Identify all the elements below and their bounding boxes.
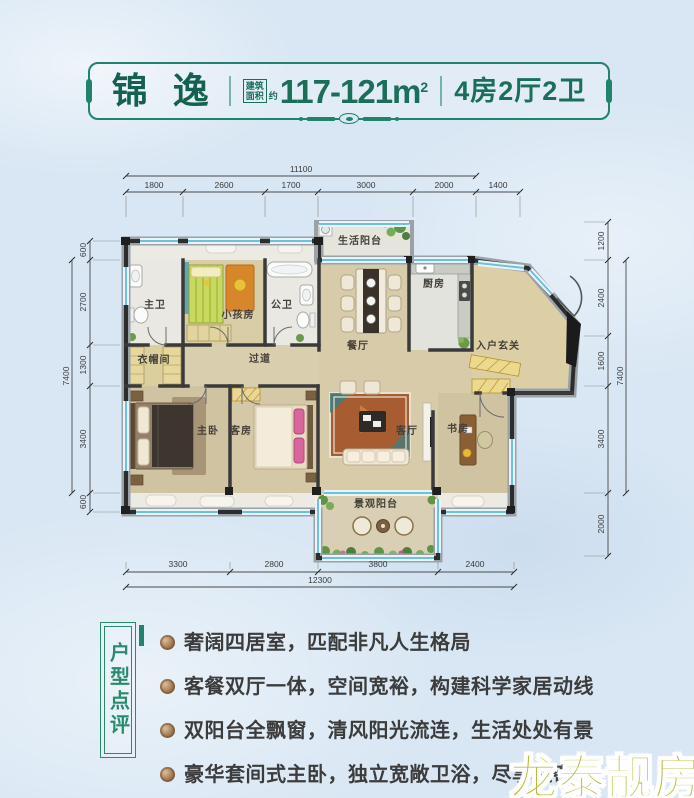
header-divider <box>440 76 442 106</box>
seal-icon <box>160 679 175 694</box>
card-edge-bar-left <box>86 79 92 103</box>
watermark: 龙泰靓房 <box>510 739 694 798</box>
dim-right-1: 1200 <box>596 231 606 250</box>
ornament-dot <box>395 117 399 121</box>
dim-top-total: 11100 <box>290 164 313 174</box>
list-item: 奢阔四居室，匹配非凡人生格局 <box>160 629 660 657</box>
dim-top-1: 1800 <box>145 180 164 190</box>
seal-icon <box>160 767 175 782</box>
header-divider <box>229 76 231 106</box>
review-tag-bar <box>139 625 144 646</box>
dim-top-5: 2000 <box>435 180 454 190</box>
dim-left-total: 7400 <box>61 366 71 385</box>
dim-right-5: 2000 <box>596 514 606 533</box>
header-divider-ornament <box>299 113 399 124</box>
room-label-view-balcony: 景观阳台 <box>354 497 398 510</box>
ornament-dot <box>299 117 303 121</box>
room-label-guest-room: 客房 <box>229 424 252 437</box>
unit-spec: 4房2厅2卫 <box>454 78 586 105</box>
poster-page: 锦 逸 建筑 面积 约 117-121m 2 4房2厅2卫 <box>0 0 694 798</box>
dimensions-bottom: 3300 2800 3800 2400 12300 <box>123 559 517 590</box>
card-edge-bar-right <box>606 79 612 103</box>
dimensions-top: 11100 1800 2600 1700 3000 2000 1400 <box>123 164 523 217</box>
seal-icon <box>160 635 175 650</box>
area-group: 建筑 面积 约 117-121m 2 <box>243 75 428 108</box>
dim-right-3: 1600 <box>596 351 606 370</box>
area-label-box: 建筑 面积 <box>243 79 267 103</box>
floor-plan: 11100 1800 2600 1700 3000 2000 1400 7400… <box>60 155 640 625</box>
dim-top-3: 1700 <box>282 180 301 190</box>
area-superscript: 2 <box>420 80 428 94</box>
list-item: 客餐双厅一体，空间宽裕，构建科学家居动线 <box>160 673 660 701</box>
selling-point-text: 客餐双厅一体，空间宽裕，构建科学家居动线 <box>184 673 594 701</box>
dim-bottom-total: 12300 <box>308 575 332 585</box>
dim-left-4: 3400 <box>78 429 88 448</box>
dimensions-right: 1200 2400 1600 3400 2000 7400 <box>584 219 629 559</box>
area-value: 117-121m <box>280 75 421 108</box>
room-label-kitchen: 厨房 <box>423 277 445 290</box>
room-label-master-bedroom: 主卧 <box>197 424 219 437</box>
room-label-cloakroom: 衣帽间 <box>138 353 171 366</box>
room-label-public-bath: 公卫 <box>271 299 293 311</box>
selling-point-text: 奢阔四居室，匹配非凡人生格局 <box>184 629 471 657</box>
area-label-top: 建筑 <box>246 81 264 91</box>
room-label-study: 书房 <box>447 422 469 435</box>
review-section-tag: 户型点评 <box>100 622 136 758</box>
approx-label: 约 <box>269 89 278 102</box>
ornament-pupil <box>346 117 353 121</box>
room-label-foyer: 入户玄关 <box>476 339 520 352</box>
ornament-bar <box>363 117 391 121</box>
ornament-bar <box>307 117 335 121</box>
dim-right-total: 7400 <box>615 366 625 385</box>
ornament-eye <box>339 113 359 124</box>
dim-top-4: 3000 <box>357 180 376 190</box>
dim-bottom-3: 3800 <box>369 559 388 569</box>
dim-right-4: 3400 <box>596 429 606 448</box>
dimensions-left: 7400 600 2700 1300 3400 600 <box>61 238 120 515</box>
dim-top-6: 1400 <box>489 180 508 190</box>
dim-bottom-4: 2400 <box>466 559 485 569</box>
header-content: 锦 逸 建筑 面积 约 117-121m 2 4房2厅2卫 <box>112 73 587 109</box>
dim-right-2: 2400 <box>596 288 606 307</box>
seal-icon <box>160 723 175 738</box>
room-label-kids-room: 小孩房 <box>221 308 255 321</box>
review-tag-label: 户型点评 <box>104 626 132 754</box>
room-label-life-balcony: 生活阳台 <box>338 234 382 247</box>
dim-top-2: 2600 <box>215 180 234 190</box>
entry-angled-wall <box>566 311 581 367</box>
room-label-corridor: 过道 <box>249 352 271 365</box>
plan-title-card: 锦 逸 建筑 面积 约 117-121m 2 4房2厅2卫 <box>88 62 610 120</box>
dim-left-3: 1300 <box>78 355 88 374</box>
room-label-dining: 餐厅 <box>346 339 369 352</box>
dim-bottom-2: 2800 <box>265 559 284 569</box>
dim-left-5: 600 <box>78 495 88 509</box>
dim-bottom-1: 3300 <box>169 559 188 569</box>
area-label-bottom: 面积 <box>246 91 264 101</box>
room-label-living-room: 客厅 <box>395 424 418 437</box>
furniture-dining <box>341 269 401 333</box>
dim-left-2: 2700 <box>78 292 88 311</box>
unit-name: 锦 逸 <box>112 73 217 109</box>
dim-left-1: 600 <box>78 243 88 257</box>
room-label-master-bath: 主卫 <box>144 298 166 311</box>
